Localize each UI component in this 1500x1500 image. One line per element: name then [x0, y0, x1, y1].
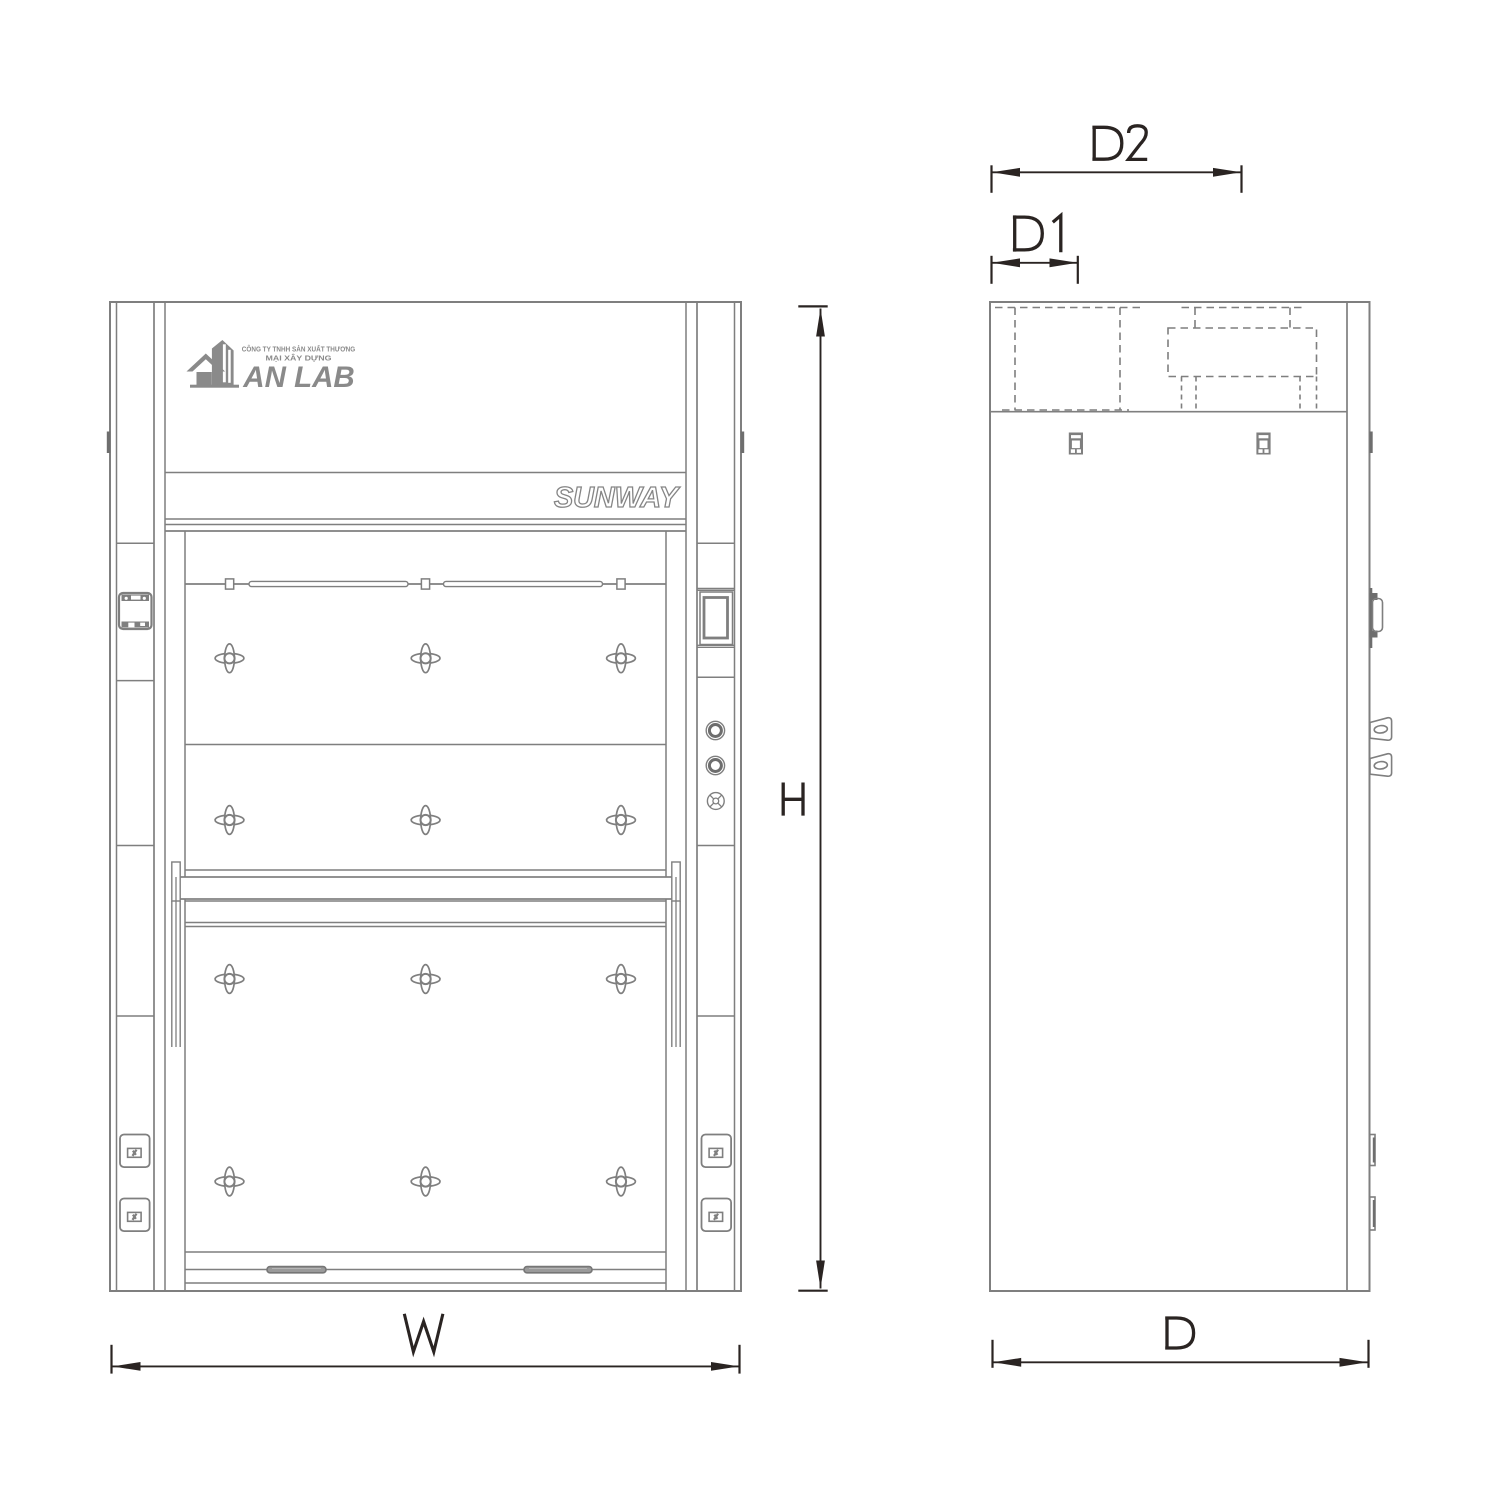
svg-text:AN LAB: AN LAB — [242, 361, 354, 394]
svg-text:SUNWAY: SUNWAY — [554, 482, 681, 514]
